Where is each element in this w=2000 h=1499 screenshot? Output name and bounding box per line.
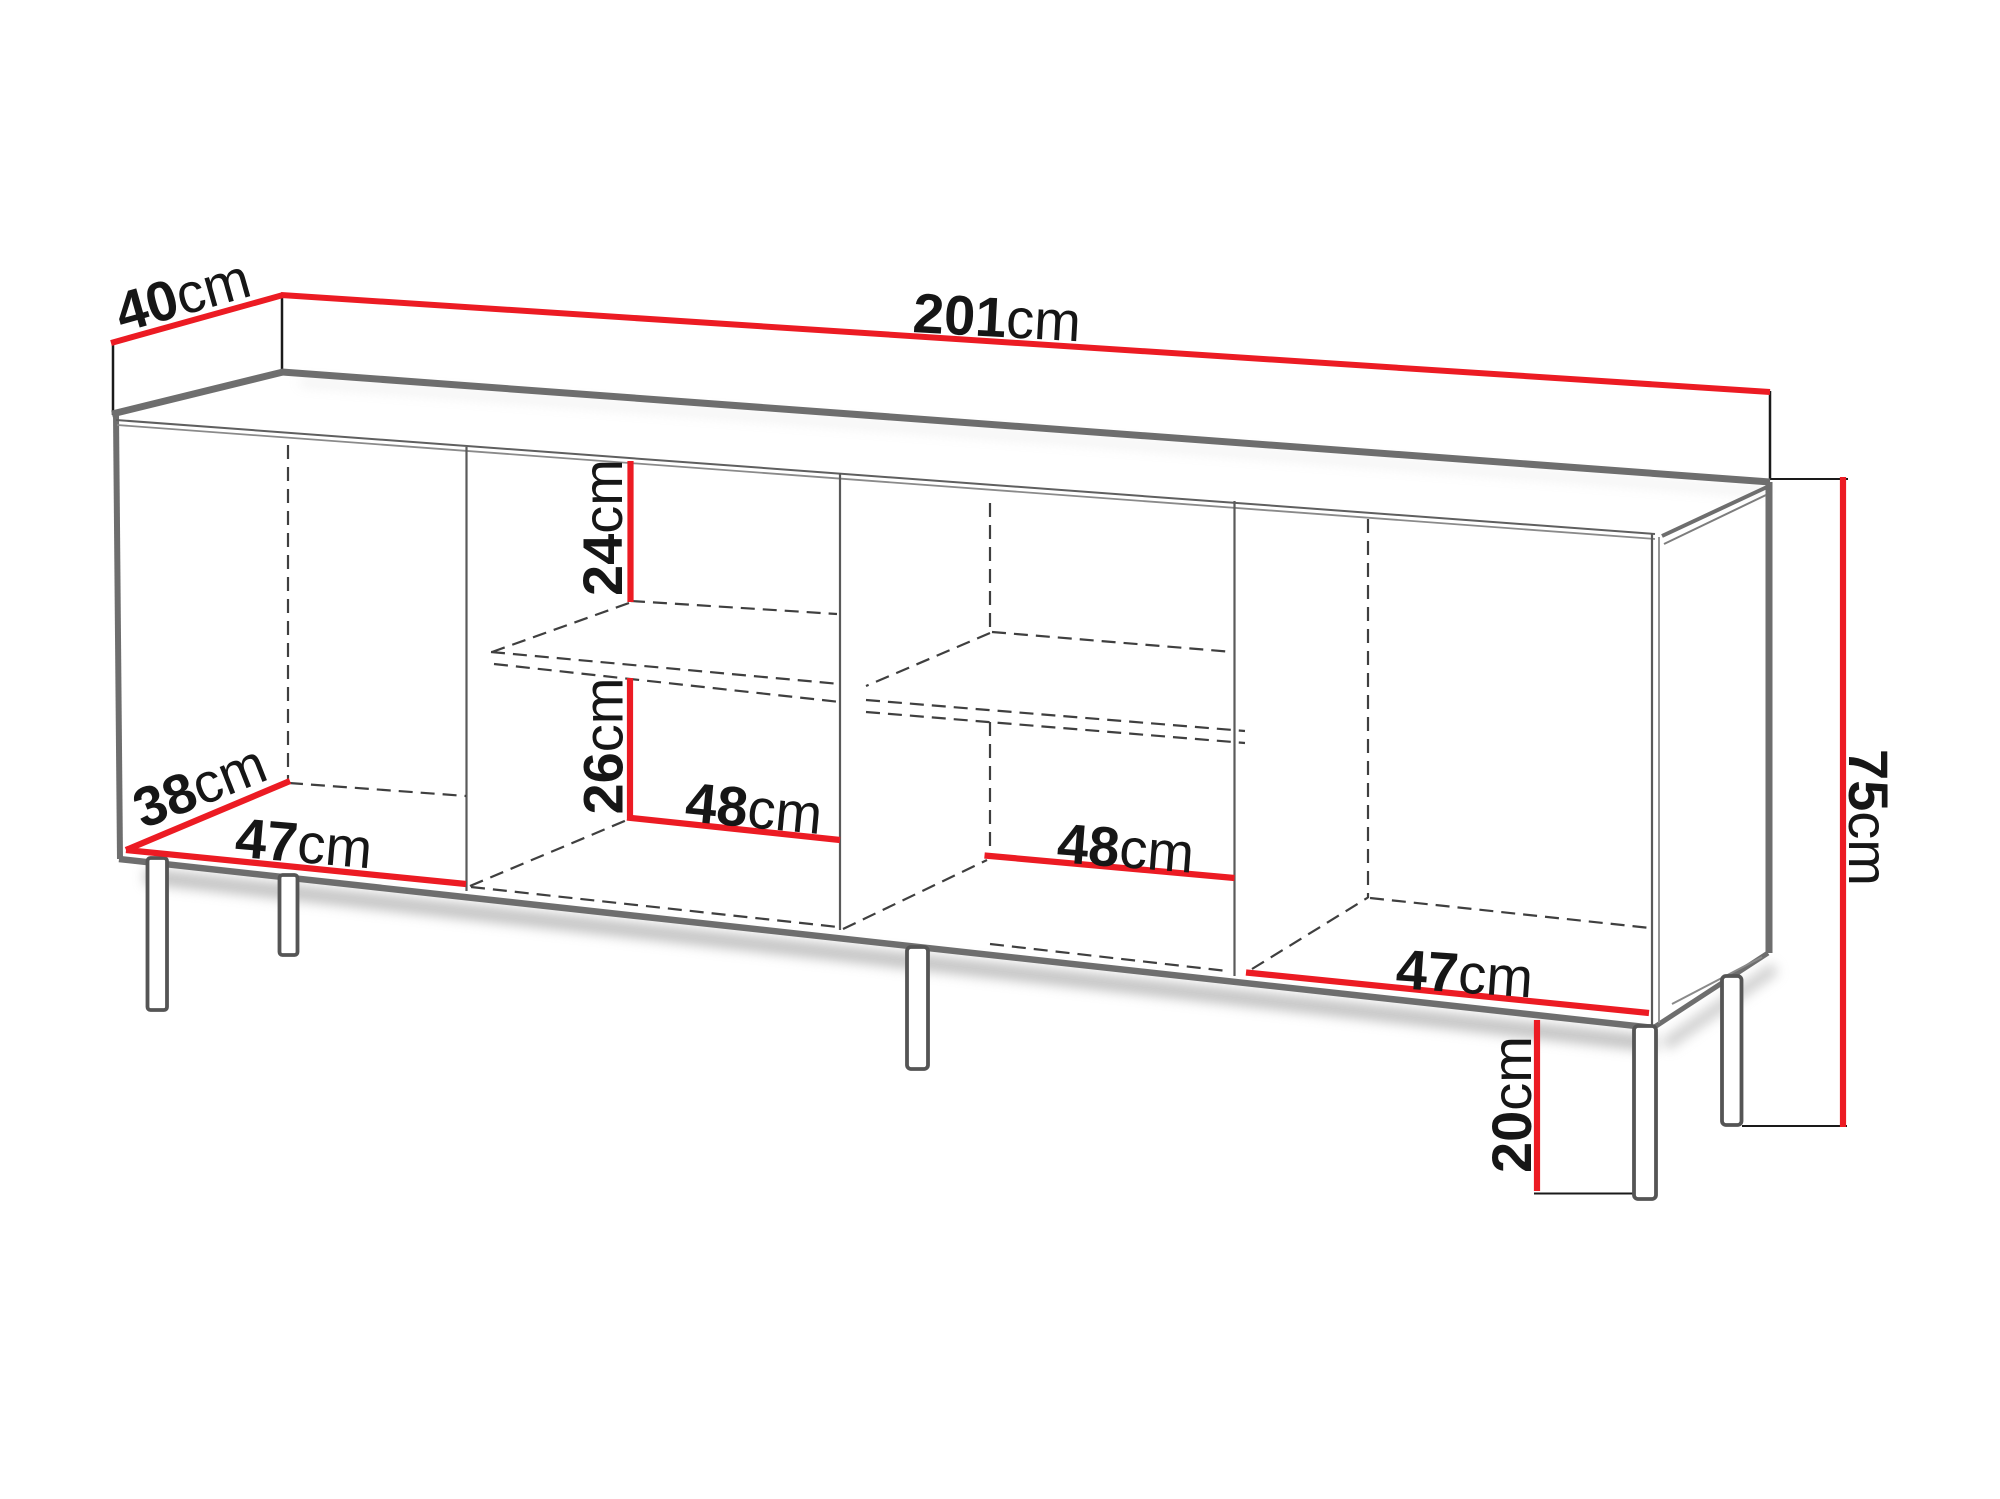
svg-text:48cm: 48cm bbox=[683, 770, 825, 846]
svg-text:47cm: 47cm bbox=[233, 806, 375, 881]
svg-text:48cm: 48cm bbox=[1055, 811, 1196, 885]
svg-text:201cm: 201cm bbox=[911, 281, 1082, 353]
svg-text:20cm: 20cm bbox=[1480, 1036, 1543, 1173]
svg-text:47cm: 47cm bbox=[1394, 937, 1535, 1009]
svg-text:75cm: 75cm bbox=[1837, 749, 1900, 886]
svg-text:26cm: 26cm bbox=[572, 678, 635, 815]
svg-text:24cm: 24cm bbox=[571, 459, 634, 596]
